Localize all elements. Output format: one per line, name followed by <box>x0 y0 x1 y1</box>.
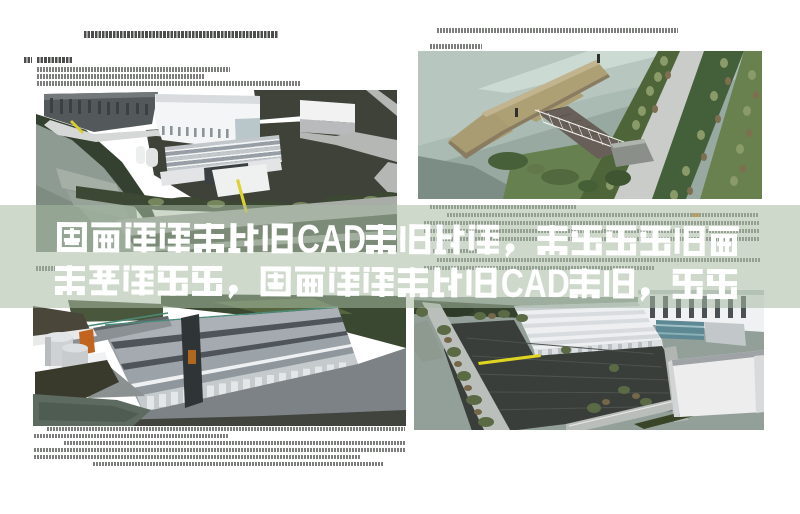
svg-text:CAD: CAD <box>501 265 570 306</box>
svg-text:CAD: CAD <box>297 222 366 262</box>
